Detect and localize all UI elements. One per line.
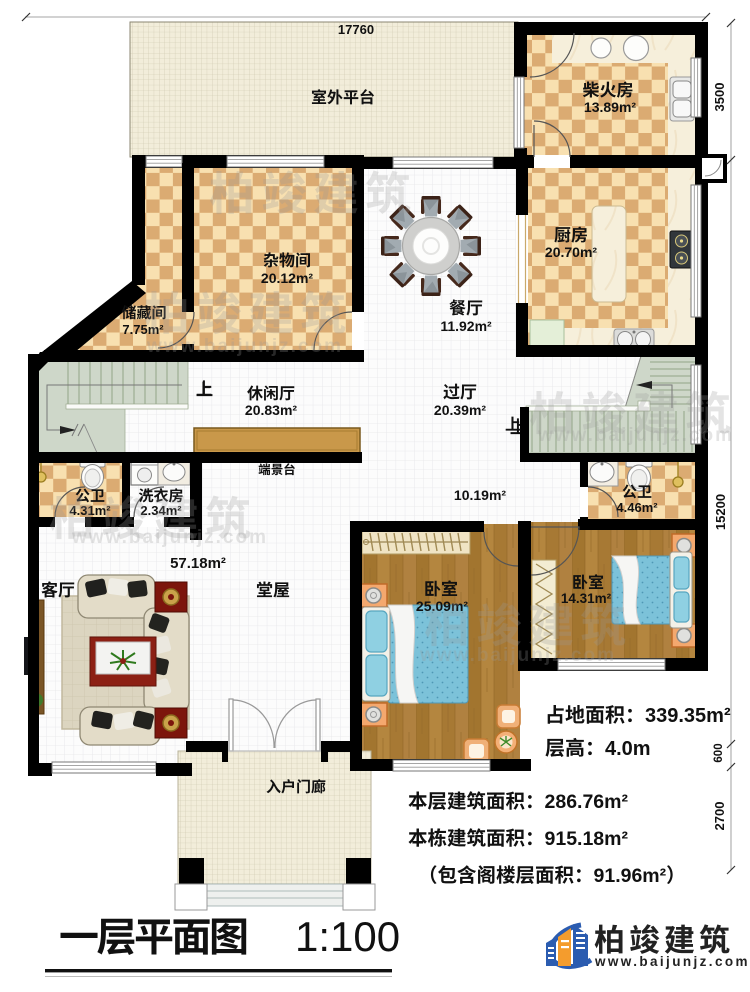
svg-text:15200: 15200 [713, 494, 728, 530]
svg-text:www.baijunjz.com: www.baijunjz.com [419, 645, 616, 666]
svg-text:286.76m²: 286.76m² [545, 791, 629, 813]
svg-text:7.75m²: 7.75m² [122, 322, 164, 337]
svg-text:13.89m²: 13.89m² [584, 99, 636, 115]
svg-text:600: 600 [713, 743, 725, 762]
svg-text:www.baijunjz.com: www.baijunjz.com [146, 336, 343, 357]
svg-text:www.baijunjz.com: www.baijunjz.com [594, 954, 750, 969]
svg-text:915.18m²: 915.18m² [545, 828, 629, 850]
svg-text:17760: 17760 [338, 22, 374, 37]
svg-text:4.46m²: 4.46m² [616, 500, 658, 515]
svg-text:www.baijunjz.com: www.baijunjz.com [71, 527, 268, 548]
svg-text:10.19m²: 10.19m² [454, 487, 506, 503]
svg-text:11.92m²: 11.92m² [440, 318, 492, 334]
svg-text:4.0m: 4.0m [605, 738, 651, 760]
svg-text:20.70m²: 20.70m² [545, 244, 597, 260]
svg-text:1:100: 1:100 [295, 913, 400, 960]
svg-text:339.35m²: 339.35m² [645, 705, 731, 727]
svg-text:14.31m²: 14.31m² [561, 591, 612, 606]
svg-text:20.12m²: 20.12m² [261, 270, 313, 286]
svg-text:57.18m²: 57.18m² [170, 555, 226, 572]
svg-text:www.baijunjz.com: www.baijunjz.com [537, 425, 734, 446]
svg-text:91.96m²: 91.96m² [594, 865, 667, 887]
svg-text:3500: 3500 [712, 83, 727, 112]
svg-text:20.39m²: 20.39m² [434, 402, 486, 418]
svg-text:20.83m²: 20.83m² [245, 402, 297, 418]
svg-text:2700: 2700 [712, 802, 727, 831]
